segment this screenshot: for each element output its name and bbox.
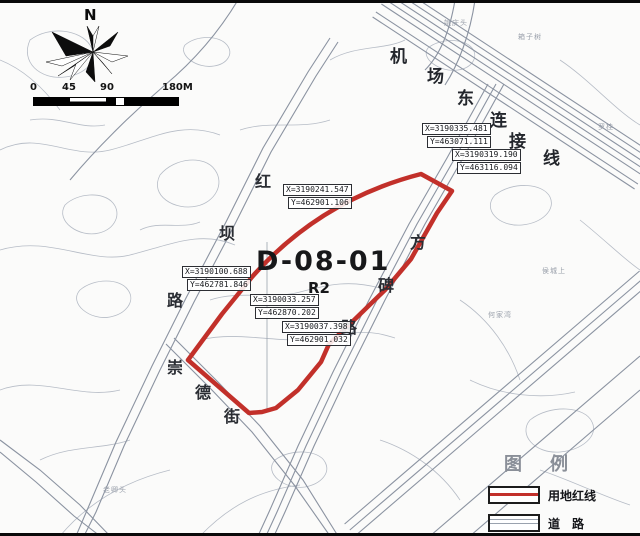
coordinate-x: X=3190037.398 <box>282 321 351 333</box>
legend: 图例 用地红线 道 路 <box>488 450 636 532</box>
scale-tick: 0 <box>30 82 37 93</box>
road-label-fangbei-char: 碑 <box>378 278 394 294</box>
coordinate-callout: X=3190241.547 Y=462901.106 <box>283 184 352 209</box>
redline-swatch <box>488 486 540 504</box>
place-label: 侯城上 <box>542 266 566 276</box>
legend-label-redline: 用地红线 <box>548 487 596 504</box>
road-label-hongba-char: 坝 <box>219 226 235 242</box>
coordinate-callout: X=3190033.257 Y=462870.202 <box>250 294 319 319</box>
parcel-zone-label: R2 <box>308 279 330 297</box>
road-label-fangbei-char: 方 <box>410 235 426 251</box>
coordinate-y: Y=462781.846 <box>187 279 251 291</box>
north-label: N <box>84 6 97 24</box>
place-label: 姚庆头 <box>444 18 468 28</box>
place-label: 箱子树 <box>518 32 542 42</box>
road-label-airport-char: 场 <box>427 69 444 86</box>
road-label-hongba-char: 红 <box>255 174 271 190</box>
legend-row-redline: 用地红线 <box>488 486 636 504</box>
coordinate-y: Y=463116.094 <box>457 162 521 174</box>
coordinate-callout: X=3190100.688 Y=462781.846 <box>182 266 251 291</box>
scale-tick: 45 <box>62 82 76 93</box>
coordinate-x: X=3190335.481 <box>422 123 491 135</box>
road-label-chongde-char: 街 <box>224 409 240 425</box>
north-arrow <box>46 26 128 82</box>
scale-tick: 90 <box>100 82 114 93</box>
coordinate-y: Y=462901.032 <box>287 334 351 346</box>
road-label-airport-char: 线 <box>543 151 560 168</box>
road-label-chongde-char: 崇 <box>167 360 183 376</box>
road-label-hongba-char: 路 <box>167 293 183 309</box>
place-label: 罗桂 <box>598 122 614 132</box>
scale-tick: 180M <box>162 82 193 93</box>
coordinate-callout: X=3190037.398 Y=462901.032 <box>282 321 351 346</box>
coordinate-y: Y=462901.106 <box>288 197 352 209</box>
coordinate-x: X=3190319.190 <box>452 149 521 161</box>
planning-map: N 0 45 90 180M 机 场 东 连 接 线 红 坝 路 方 碑 路 崇… <box>0 0 640 536</box>
legend-title: 图例 <box>504 450 636 476</box>
coordinate-y: Y=462870.202 <box>255 307 319 319</box>
place-label: 老卿头 <box>103 485 127 495</box>
parcel-code-label: D-08-01 <box>256 246 390 277</box>
road-label-chongde-char: 德 <box>195 385 211 401</box>
road-label-airport-char: 东 <box>457 91 474 108</box>
coordinate-callout: X=3190319.190 Y=463116.094 <box>452 149 521 174</box>
place-label: 何家湾 <box>488 310 512 320</box>
legend-label-road: 道 路 <box>548 515 584 532</box>
coordinate-x: X=3190100.688 <box>182 266 251 278</box>
scale-bar-cells <box>33 97 179 106</box>
road-label-airport-char: 连 <box>490 113 507 130</box>
coordinate-y: Y=463071.111 <box>427 136 491 148</box>
road-label-airport-char: 机 <box>390 49 407 66</box>
coordinate-callout: X=3190335.481 Y=463071.111 <box>422 123 491 148</box>
frame-edge-top <box>0 0 640 3</box>
road-swatch <box>488 514 540 532</box>
legend-row-road: 道 路 <box>488 514 636 532</box>
coordinate-x: X=3190241.547 <box>283 184 352 196</box>
